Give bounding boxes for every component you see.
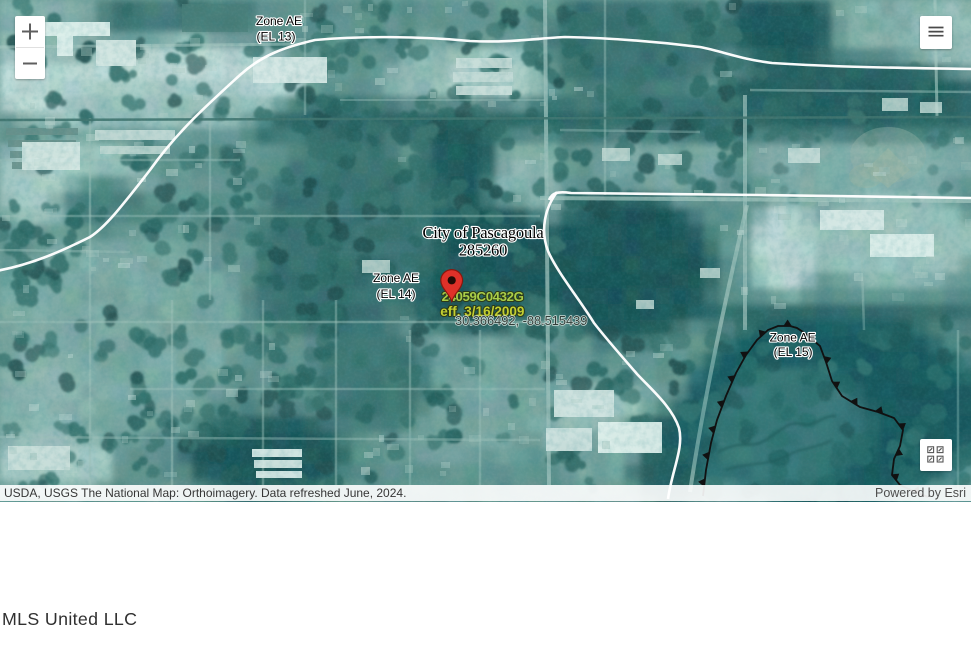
svg-text:Zone AE: Zone AE [373, 271, 419, 285]
svg-text:30.366492, -88.515439: 30.366492, -88.515439 [455, 313, 587, 328]
svg-text:Zone AE: Zone AE [256, 14, 302, 28]
svg-text:Zone AE: Zone AE [770, 330, 816, 344]
svg-text:(EL 15): (EL 15) [774, 345, 813, 359]
svg-text:285260: 285260 [459, 241, 507, 260]
svg-text:(EL 13): (EL 13) [257, 30, 296, 44]
svg-text:City of Pascagoula: City of Pascagoula [422, 223, 544, 242]
svg-text:(EL 14): (EL 14) [377, 287, 416, 301]
